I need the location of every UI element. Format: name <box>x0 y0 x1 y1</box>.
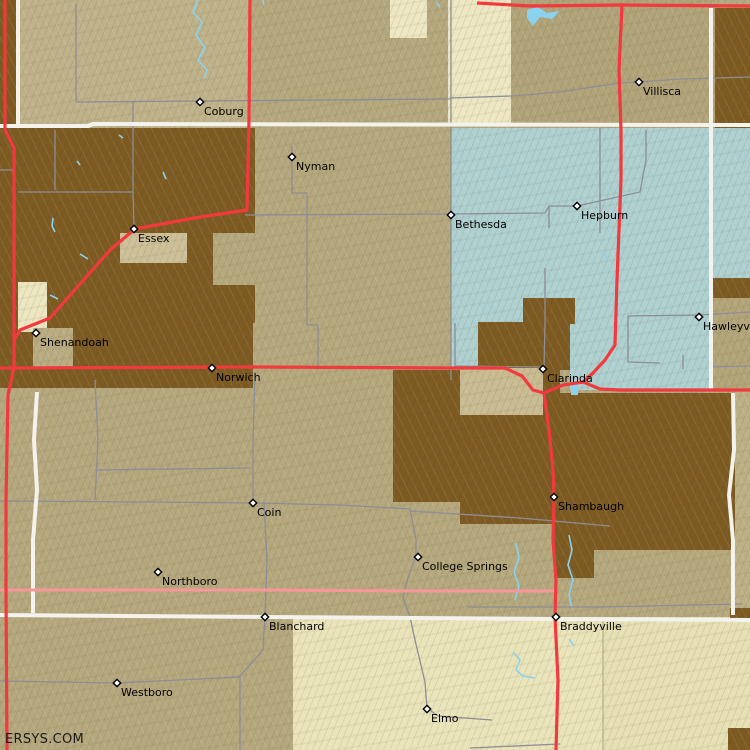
town-marker-villisca <box>635 78 642 85</box>
county-road-4 <box>0 615 750 620</box>
local-road-22 <box>240 502 267 750</box>
stream-8 <box>52 218 55 232</box>
stream-0 <box>193 0 207 78</box>
town-label-westboro: Westboro <box>121 686 173 699</box>
highway-2 <box>0 367 750 393</box>
town-label-elmo: Elmo <box>431 712 459 725</box>
local-road-25 <box>95 468 250 470</box>
town-label-clarinda: Clarinda <box>547 372 593 385</box>
local-road-11 <box>577 130 646 206</box>
local-road-28 <box>410 511 610 526</box>
town-marker-elmo <box>423 705 430 712</box>
local-road-6 <box>133 192 134 228</box>
local-road-3 <box>511 77 750 96</box>
highway-5 <box>544 393 558 750</box>
stream-1 <box>568 535 573 608</box>
county-road-0 <box>0 124 750 126</box>
local-road-2 <box>450 96 511 98</box>
highway-3 <box>477 3 750 6</box>
town-label-braddyville: Braddyville <box>560 620 622 633</box>
local-road-30 <box>544 268 545 368</box>
town-marker-bethesda <box>447 211 454 218</box>
town-marker-shambaugh <box>550 493 557 500</box>
stream-5 <box>77 161 80 165</box>
stream-9 <box>604 254 608 260</box>
town-marker-norwich <box>208 364 215 371</box>
town-label-coburg: Coburg <box>204 105 244 118</box>
highway-1 <box>14 0 250 340</box>
town-marker-nyman <box>288 153 295 160</box>
stream-4 <box>119 135 123 138</box>
stream-6 <box>50 295 58 299</box>
local-road-26 <box>468 604 742 607</box>
watermark: ERSYS.COM <box>5 732 84 747</box>
town-label-coin: Coin <box>257 506 281 519</box>
stream-13 <box>437 3 440 7</box>
local-road-10 <box>245 206 577 215</box>
local-road-31 <box>470 744 560 748</box>
stream-11 <box>163 172 166 179</box>
roads-towns-layer: CoburgVilliscaNymanEssexBethesdaHepburnS… <box>0 0 750 750</box>
secondary-highway-0 <box>0 590 554 591</box>
town-label-hepburn: Hepburn <box>581 209 628 222</box>
local-road-14 <box>628 312 750 316</box>
county-road-5 <box>33 392 37 613</box>
county-road-3 <box>729 393 734 615</box>
town-label-nyman: Nyman <box>296 160 335 173</box>
town-label-essex: Essex <box>138 232 170 245</box>
town-label-blanchard: Blanchard <box>269 620 324 633</box>
town-label-norwich: Norwich <box>216 371 261 384</box>
local-road-21 <box>403 509 492 720</box>
local-road-15 <box>628 316 660 363</box>
local-road-24 <box>95 380 98 500</box>
town-marker-northboro <box>154 568 161 575</box>
town-label-bethesda: Bethesda <box>455 218 507 231</box>
town-marker-shenandoah <box>32 329 39 336</box>
local-road-19 <box>253 372 255 503</box>
town-label-shambaugh: Shambaugh <box>558 500 624 513</box>
local-road-9 <box>292 146 318 367</box>
local-road-1 <box>76 99 450 102</box>
highway-0 <box>5 0 14 750</box>
highway-4 <box>583 5 622 382</box>
town-label-villisca: Villisca <box>643 85 681 98</box>
stream-10 <box>569 639 574 646</box>
stream-12 <box>263 0 264 5</box>
town-label-northboro: Northboro <box>162 575 218 588</box>
town-marker-coin <box>249 499 256 506</box>
town-marker-hepburn <box>573 202 580 209</box>
town-marker-westboro <box>113 679 120 686</box>
town-label-college-springs: College Springs <box>422 560 508 573</box>
local-road-17 <box>710 366 750 367</box>
local-road-20 <box>0 501 410 509</box>
stream-3 <box>513 652 535 678</box>
lake-northeast <box>527 7 560 26</box>
map-canvas[interactable]: CoburgVilliscaNymanEssexBethesdaHepburnS… <box>0 0 750 750</box>
town-marker-blanchard <box>261 613 268 620</box>
stream-7 <box>80 254 88 259</box>
town-label-shenandoah: Shenandoah <box>40 336 109 349</box>
town-label-hawleyville: Hawleyville <box>703 320 750 333</box>
town-marker-coburg <box>196 98 203 105</box>
